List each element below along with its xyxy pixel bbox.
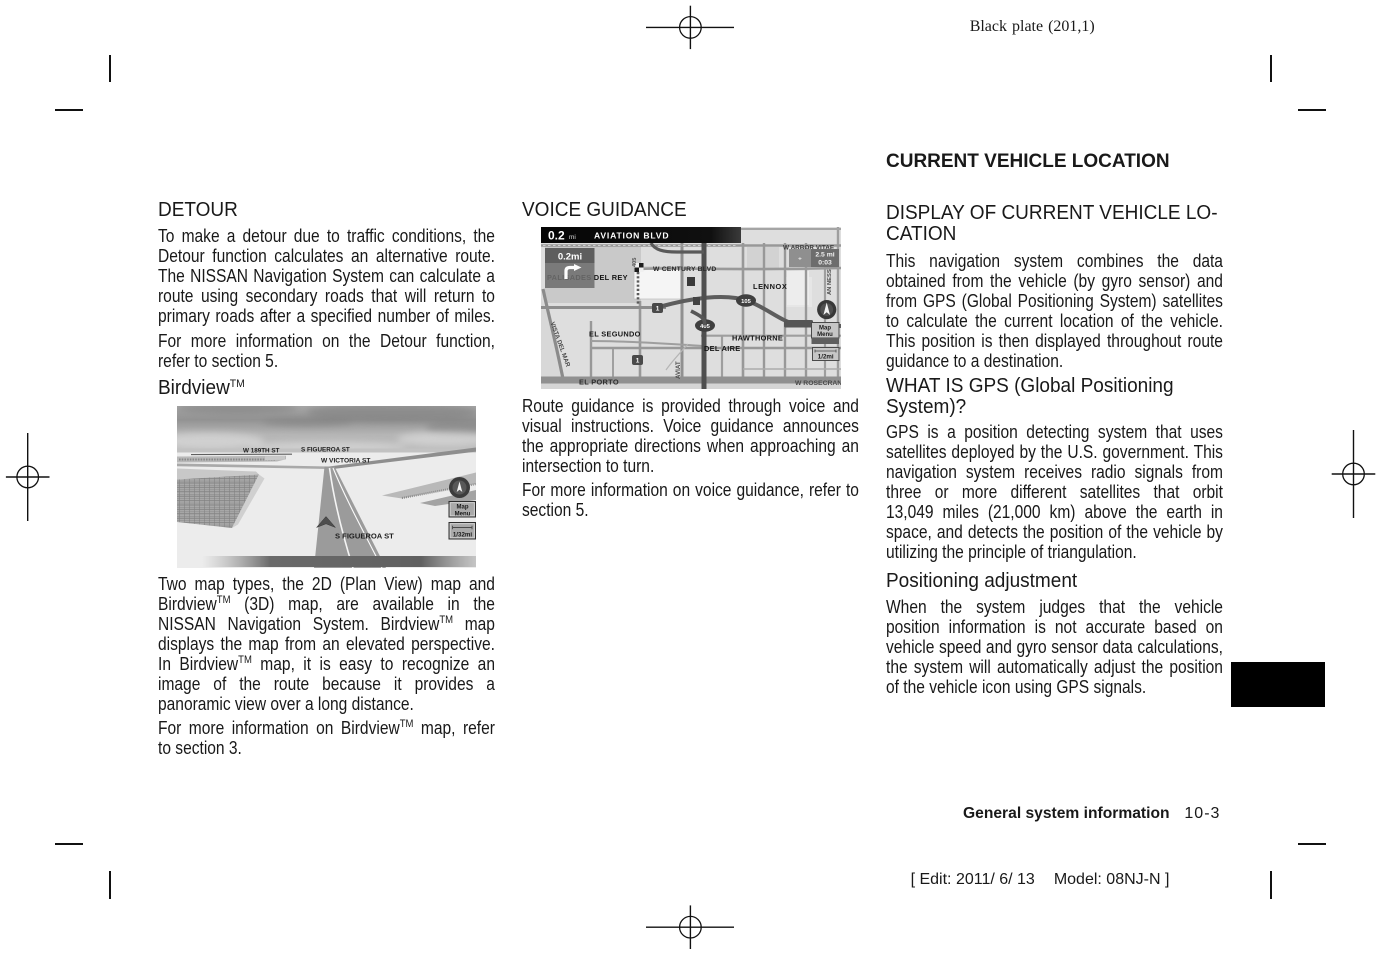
svg-text:Menu: Menu (454, 511, 470, 517)
svg-text:EL SEGUNDO: EL SEGUNDO (589, 330, 641, 339)
svg-text:DEL AIRE: DEL AIRE (704, 344, 740, 353)
svg-text:W VICTORIA ST: W VICTORIA ST (321, 457, 370, 464)
svg-text:EL PORTO: EL PORTO (579, 378, 619, 387)
svg-text:2.5 mi: 2.5 mi (815, 252, 834, 259)
svg-text:Map: Map (456, 504, 468, 510)
svg-text:S FIGUEROA ST: S FIGUEROA ST (335, 531, 394, 540)
svg-text:1: 1 (635, 358, 639, 365)
svg-text:Menu: Menu (817, 332, 833, 338)
svg-text:AVIAT: AVIAT (675, 361, 682, 379)
svg-text:0.2: 0.2 (548, 229, 565, 243)
svg-text:⌖: ⌖ (798, 256, 802, 263)
svg-text:0.2mi: 0.2mi (557, 252, 581, 263)
svg-text:W 189TH ST: W 189TH ST (243, 447, 280, 454)
svg-text:mi: mi (569, 234, 576, 241)
svg-text:AVIATION BLVD: AVIATION BLVD (594, 231, 669, 241)
svg-text:LENNOX: LENNOX (753, 282, 787, 291)
svg-text:S FIGUEROA ST: S FIGUEROA ST (301, 446, 350, 453)
svg-text:1: 1 (655, 306, 659, 313)
svg-text:1/32mi: 1/32mi (452, 531, 472, 538)
svg-text:1/2mi: 1/2mi (817, 354, 833, 361)
svg-text:Map: Map (819, 325, 831, 331)
svg-text:W ROSECRAN: W ROSECRAN (795, 380, 841, 387)
svg-text:AN NESS: AN NESS (827, 269, 833, 295)
svg-text:105: 105 (741, 299, 751, 305)
svg-text:0:03: 0:03 (818, 260, 832, 267)
svg-text:405: 405 (632, 258, 638, 267)
svg-text:HAWTHORNE: HAWTHORNE (732, 334, 783, 343)
svg-text:W CENTURY BLVD: W CENTURY BLVD (653, 266, 716, 273)
